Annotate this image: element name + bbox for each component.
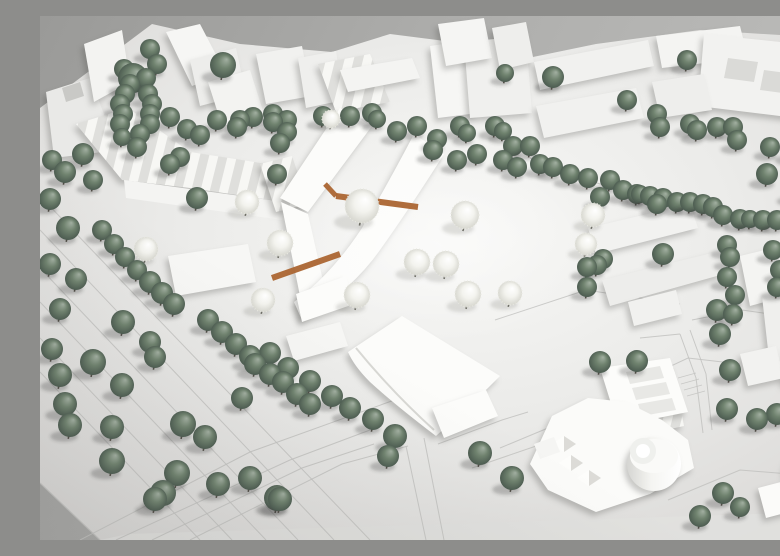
blossom-tree	[581, 203, 605, 227]
blossom-tree	[267, 230, 293, 256]
tree	[500, 466, 524, 490]
tree	[730, 497, 750, 517]
building-courtyard-1	[724, 58, 758, 82]
tree	[650, 117, 670, 137]
tree	[193, 425, 217, 449]
tree	[270, 133, 290, 153]
blossom-tree	[404, 249, 430, 275]
blossom-tree	[344, 282, 370, 308]
tree	[507, 157, 527, 177]
tree	[723, 304, 743, 324]
tree	[377, 445, 399, 467]
tree	[652, 243, 674, 265]
tree	[48, 363, 72, 387]
tree	[144, 346, 166, 368]
tree	[717, 267, 737, 287]
tree	[54, 161, 76, 183]
tree	[170, 411, 196, 437]
tree	[110, 373, 134, 397]
tree	[111, 310, 135, 334]
tree	[340, 106, 360, 126]
tree	[40, 253, 61, 275]
tree	[677, 50, 697, 70]
tree	[56, 216, 80, 240]
tree	[299, 393, 321, 415]
tree	[231, 387, 253, 409]
tree	[238, 466, 262, 490]
tree	[746, 408, 768, 430]
tree	[716, 398, 738, 420]
tree	[713, 205, 733, 225]
tree	[423, 140, 443, 160]
tree	[339, 397, 361, 419]
tree	[712, 482, 734, 504]
tree	[99, 448, 125, 474]
tree	[143, 487, 167, 511]
tree	[589, 351, 611, 373]
tree	[467, 144, 487, 164]
tree	[756, 163, 778, 185]
tree	[496, 64, 514, 82]
tree	[127, 137, 147, 157]
tree	[160, 154, 180, 174]
tree	[447, 150, 467, 170]
tree	[80, 349, 106, 375]
tree	[725, 285, 745, 305]
model-scene-canvas	[40, 16, 780, 540]
tree	[207, 110, 227, 130]
tree	[577, 277, 597, 297]
blossom-tree	[251, 288, 275, 312]
tree	[83, 170, 103, 190]
tree	[206, 472, 230, 496]
blossom-tree	[134, 237, 158, 261]
tree	[578, 168, 598, 188]
tree	[383, 424, 407, 448]
tree	[267, 164, 287, 184]
tree	[626, 350, 648, 372]
tree	[72, 143, 94, 165]
tree	[458, 124, 476, 142]
tree	[542, 66, 564, 88]
tree	[362, 408, 384, 430]
tree	[760, 137, 780, 157]
tree	[719, 359, 741, 381]
tree	[227, 117, 247, 137]
tree	[387, 121, 407, 141]
architectural-model-photo	[40, 16, 780, 540]
blossom-tree	[451, 201, 479, 229]
tree	[727, 130, 747, 150]
tree	[65, 268, 87, 290]
tree	[190, 125, 210, 145]
tree	[577, 257, 597, 277]
tree	[58, 413, 82, 437]
tree	[647, 194, 667, 214]
tree	[560, 164, 580, 184]
tree	[210, 52, 236, 78]
blossom-tree	[433, 251, 459, 277]
blossom-tree	[322, 110, 340, 128]
tree	[687, 120, 707, 140]
tree	[41, 338, 63, 360]
blossom-tree	[345, 189, 379, 223]
blossom-tree	[235, 190, 259, 214]
blossom-tree	[575, 233, 597, 255]
tree	[407, 116, 427, 136]
blossom-tree	[498, 281, 522, 305]
tree	[53, 392, 77, 416]
tree	[186, 187, 208, 209]
tree	[163, 293, 185, 315]
tree	[160, 107, 180, 127]
tree	[321, 385, 343, 407]
tree	[617, 90, 637, 110]
building-cylinder-ring-top	[636, 444, 650, 458]
tree	[100, 415, 124, 439]
tree	[268, 487, 292, 511]
tree	[368, 110, 386, 128]
blossom-tree	[455, 281, 481, 307]
tree	[709, 323, 731, 345]
tree	[520, 136, 540, 156]
tree	[720, 247, 740, 267]
tree	[49, 298, 71, 320]
tree	[40, 188, 61, 210]
tree	[468, 441, 492, 465]
building-tower-nc1	[438, 18, 492, 66]
